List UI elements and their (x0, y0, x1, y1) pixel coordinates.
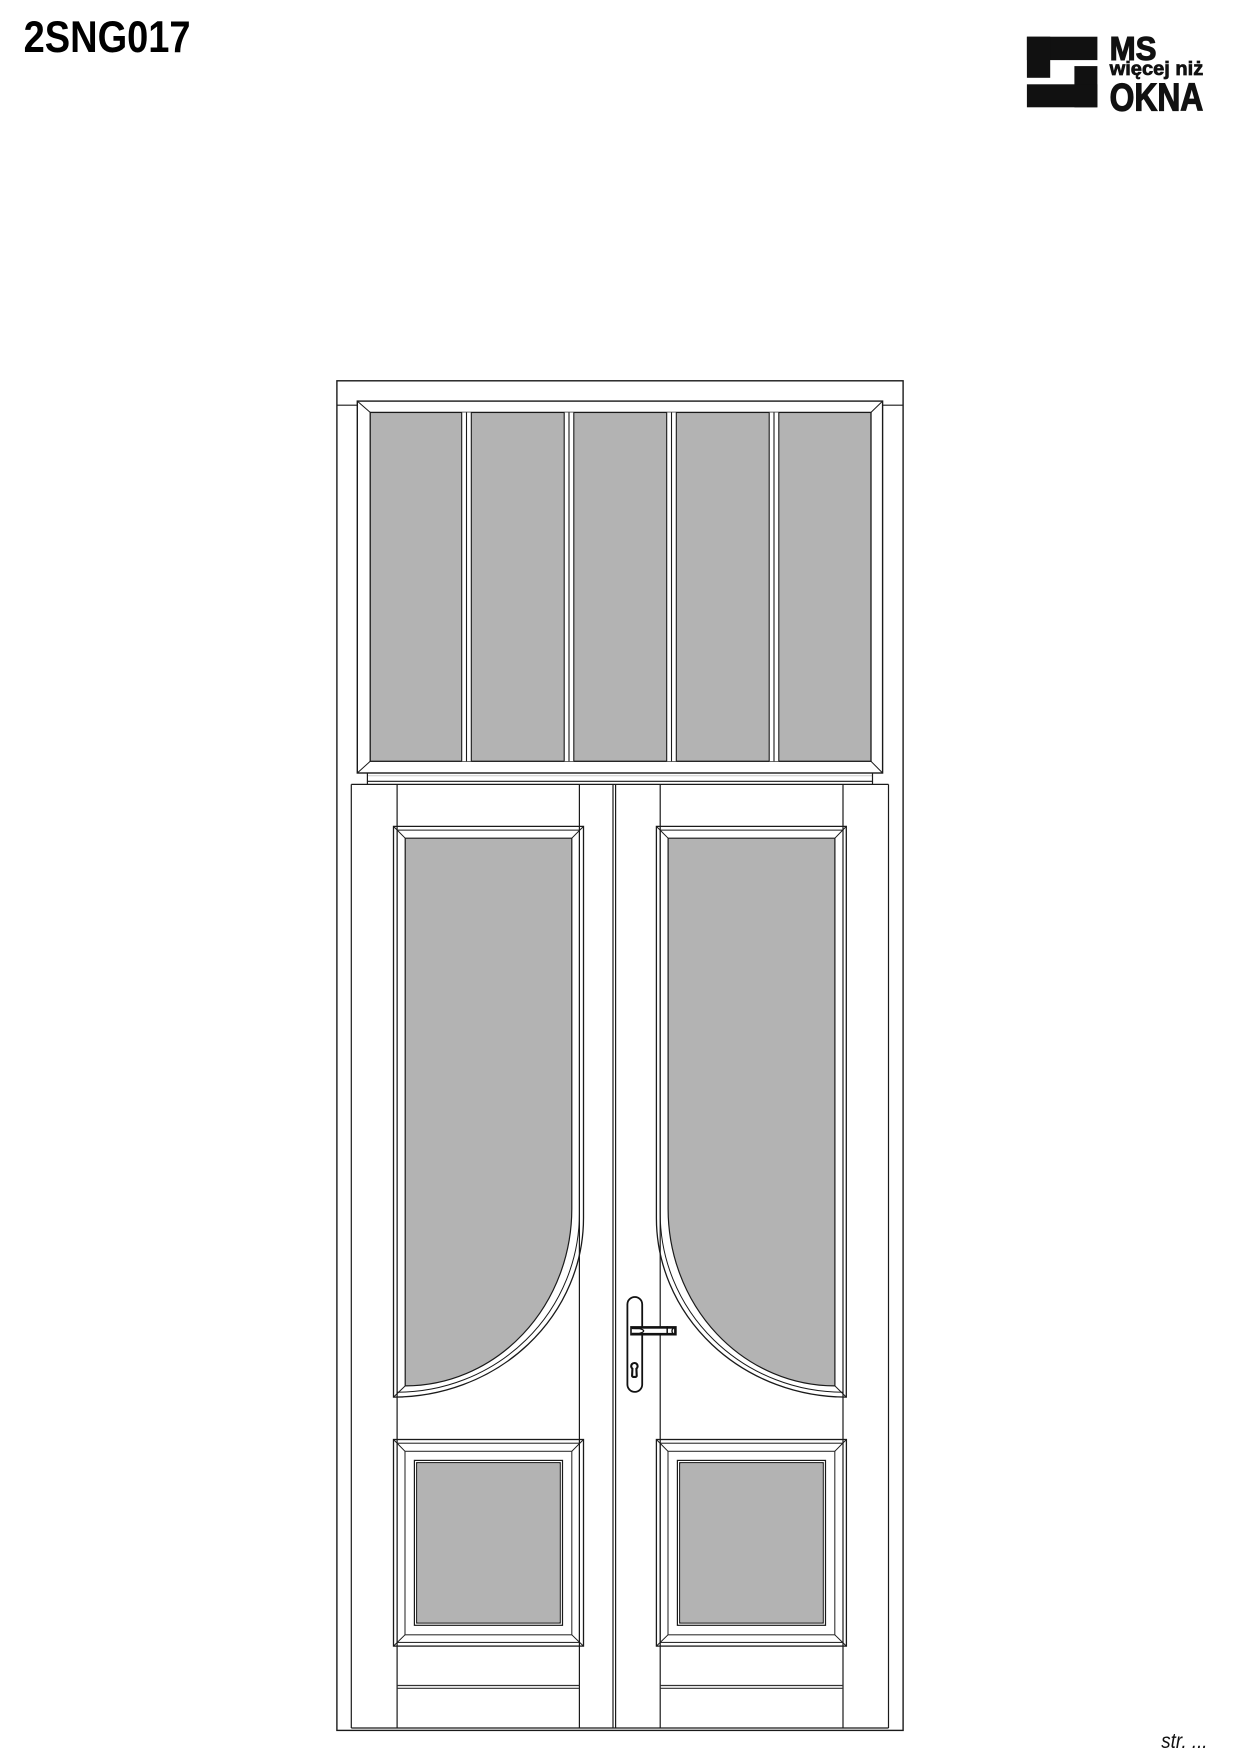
svg-text:str. ...: str. ... (1161, 1729, 1207, 1753)
svg-text:OKNA: OKNA (1110, 77, 1204, 120)
svg-text:2SNG017: 2SNG017 (24, 13, 191, 62)
